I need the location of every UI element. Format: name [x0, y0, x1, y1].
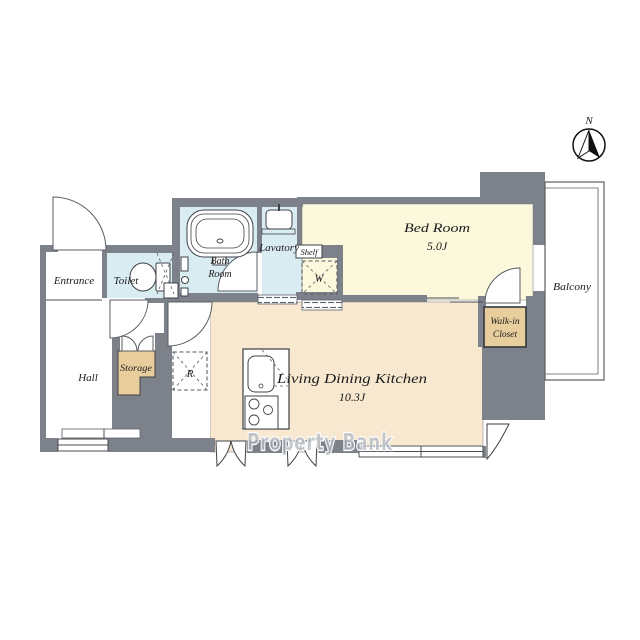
toilet-door-swing — [110, 300, 148, 338]
hall-window — [58, 438, 108, 452]
bedroom-label: Bed Room — [404, 220, 470, 235]
shelf-label: Shelf — [301, 247, 320, 257]
bedroom-size-label: 5.0J — [427, 239, 448, 253]
washer-nook-threshold — [302, 300, 342, 310]
lavatory-label: Lavatory — [258, 243, 300, 254]
hall-label: Hall — [77, 372, 98, 384]
ldk-label: Living Dining Kitchen — [276, 371, 428, 386]
toilet-label: Toilet — [114, 275, 140, 287]
balcony-label: Balcony — [553, 282, 592, 293]
entrance-label: Entrance — [53, 275, 94, 287]
ldk-size-label: 10.3J — [339, 390, 366, 404]
north-label: N — [584, 115, 593, 127]
corner-door-swing — [487, 424, 509, 459]
balcony-area — [545, 182, 604, 380]
casement-window-icon — [216, 441, 231, 466]
kitchen-sink-icon — [248, 356, 274, 392]
walk-in-closet-label-line1: Walk-in — [490, 317, 519, 327]
walk-in-closet-label-line2: Closet — [493, 330, 518, 340]
watermark: Property Bank — [247, 430, 393, 456]
stove-icon — [245, 396, 278, 429]
bathroom-label-line1: Bath — [211, 256, 230, 267]
kitchen-counter — [243, 349, 289, 429]
walk-in-closet-box — [484, 307, 526, 347]
refrigerator-label: R — [186, 368, 194, 380]
balcony-outline — [545, 182, 604, 380]
casement-window-icon — [231, 441, 246, 466]
lavatory-threshold — [258, 295, 297, 304]
storage-door-right-swing — [138, 336, 153, 351]
storage-door-left-swing — [122, 336, 137, 351]
entrance-door-swing — [53, 197, 106, 250]
floor-plan-drawing: Entrance Toilet Bath Room Lavatory Shelf… — [0, 0, 640, 640]
storage-label: Storage — [120, 364, 152, 374]
floor-plan-page: Entrance Toilet Bath Room Lavatory Shelf… — [0, 0, 640, 640]
bathroom-label-line2: Room — [207, 269, 231, 280]
compass-icon — [573, 129, 605, 161]
